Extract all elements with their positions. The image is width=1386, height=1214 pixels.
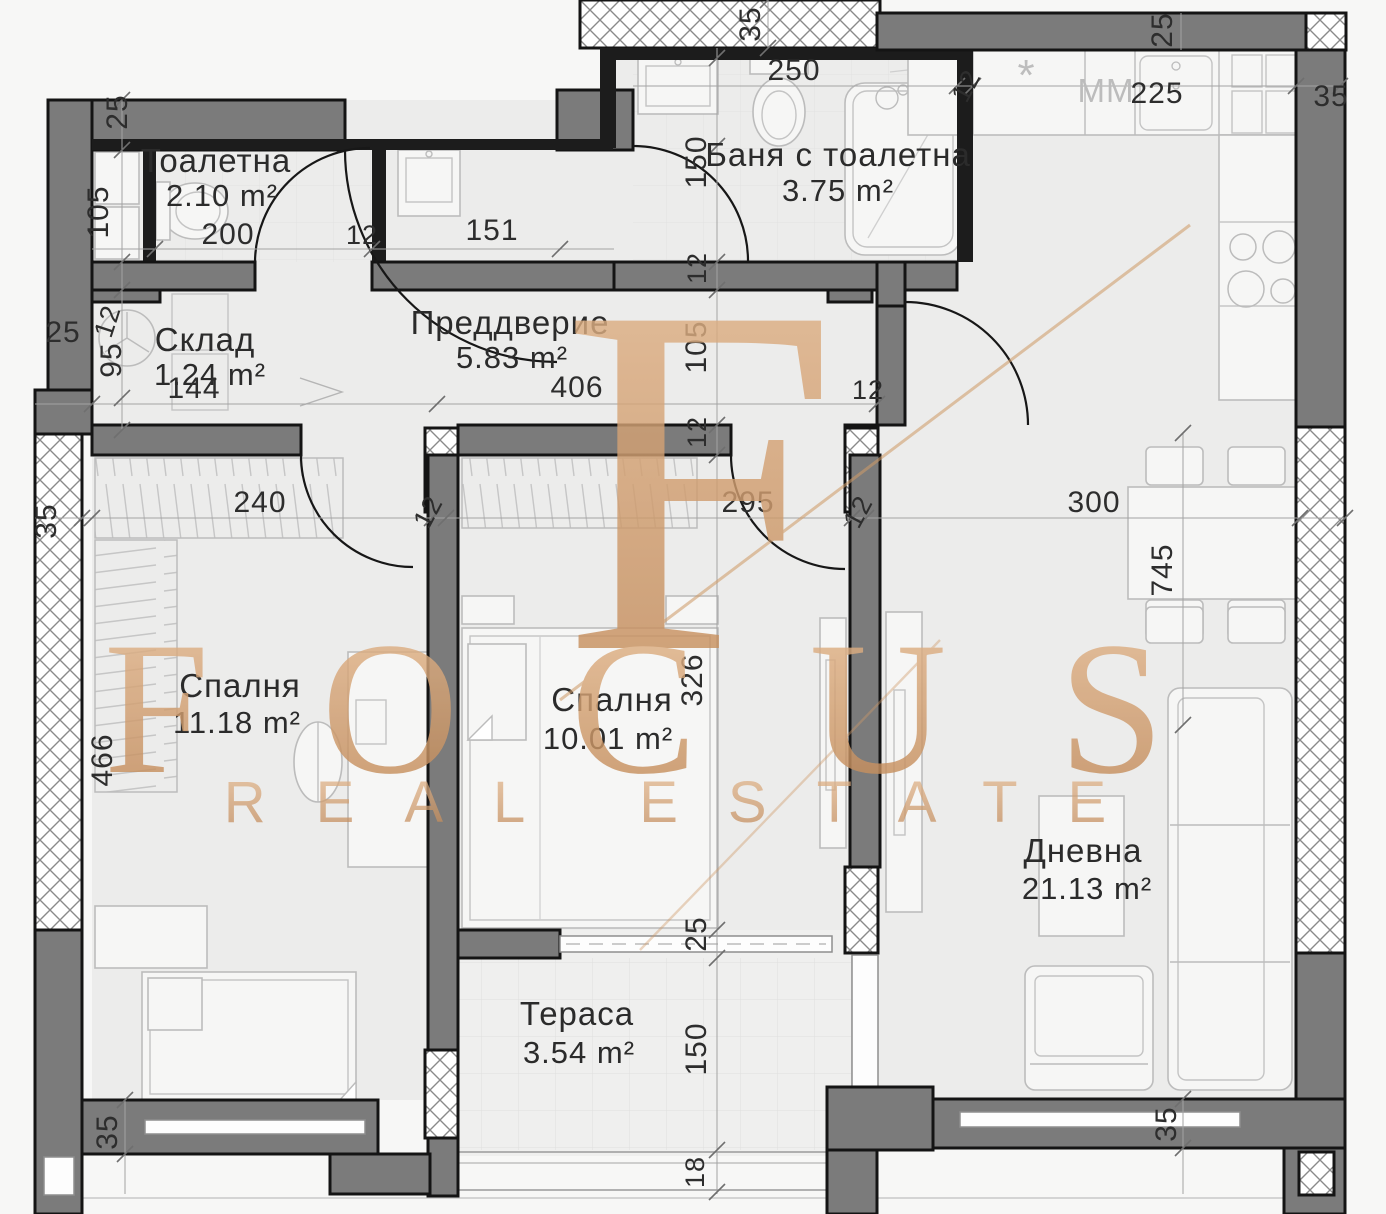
dimension-label: 745 [1146,543,1179,596]
dimension-label: 144 [167,372,220,405]
room-area-toilet: 2.10 m² [166,178,278,213]
room-name-terrace: Тераса [520,995,634,1032]
dimension-label: 150 [680,135,713,188]
dimension-label: 240 [233,486,286,519]
dimension-label: 12 [346,220,378,250]
dimension-label: 151 [465,214,518,247]
floor-plan-drawing: Тоалетна 2.10 m² Баня с тоалетна 3.75 m²… [0,0,1386,1214]
dimension-label: 35 [1313,80,1348,113]
dimension-label: 25 [101,94,134,129]
dimension-label: 25 [1146,12,1179,47]
room-name-toilet: Тоалетна [141,142,292,179]
dimension-label: 300 [1067,486,1120,519]
dimension-label: 35 [91,1114,124,1149]
room-name-storage: Склад [155,321,256,358]
dimension-label: 95 [95,342,128,377]
dimension-label: 150 [680,1022,713,1075]
dimension-label: 250 [767,54,820,87]
dimension-label: 35 [1150,1106,1183,1141]
washing-machine-label: MM [1078,72,1135,109]
room-name-living: Дневна [1023,832,1142,869]
dimension-label: 35 [734,6,767,41]
dimension-label: 200 [201,218,254,251]
boiler-mark: * [1017,51,1034,100]
dimension-label: 25 [45,316,80,349]
dimension-label: 18 [680,1156,710,1188]
room-area-terrace: 3.54 m² [523,1035,635,1070]
brand-tagline: REAL ESTATE [224,770,1156,835]
room-name-bathroom: Баня с тоалетна [705,136,971,173]
dimension-label: 105 [82,185,115,238]
dimension-label: 12 [852,375,884,405]
dimension-label: 225 [1130,77,1183,110]
room-area-hallway: 5.83 m² [456,340,568,375]
dimension-label: 25 [680,916,713,951]
floor-plan: Тоалетна 2.10 m² Баня с тоалетна 3.75 m²… [0,0,1386,1214]
room-area-living: 21.13 m² [1022,871,1152,906]
dimension-label: 35 [30,503,63,538]
